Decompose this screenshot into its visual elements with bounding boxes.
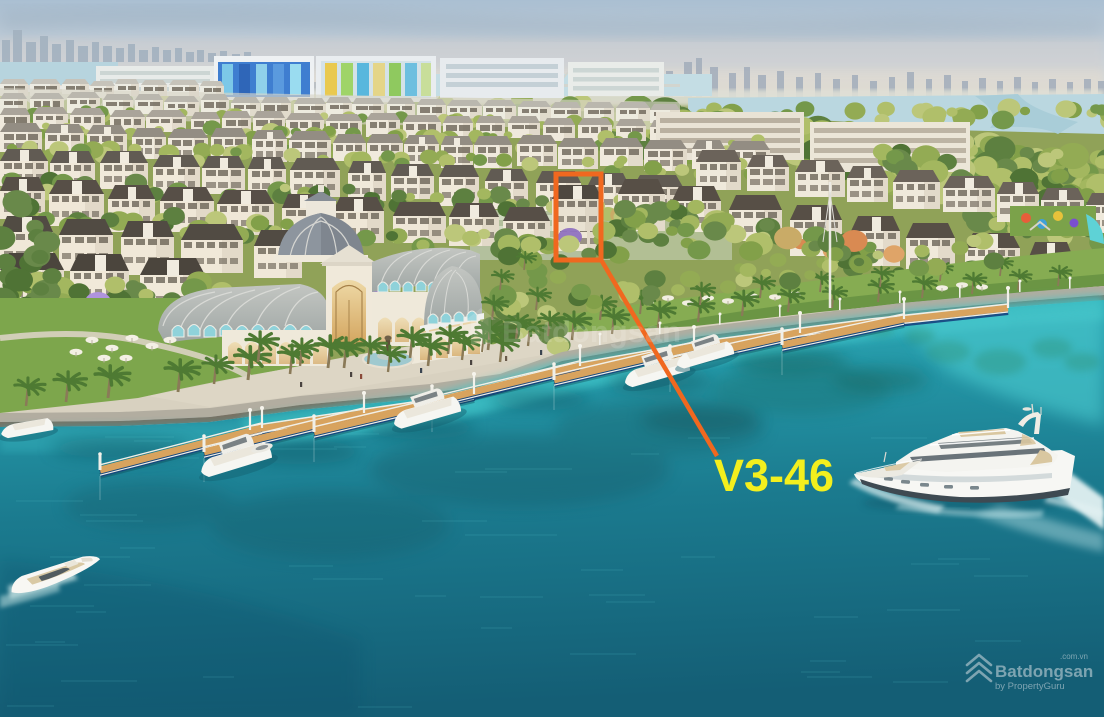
svg-text:V3-46: V3-46 — [714, 450, 834, 501]
svg-text:by PropertyGuru: by PropertyGuru — [995, 681, 1065, 692]
svg-text:.com.vn: .com.vn — [1060, 652, 1088, 661]
svg-text:Batdongsan: Batdongsan — [995, 662, 1093, 681]
svg-text:Batdongsan: Batdongsan — [502, 314, 681, 349]
